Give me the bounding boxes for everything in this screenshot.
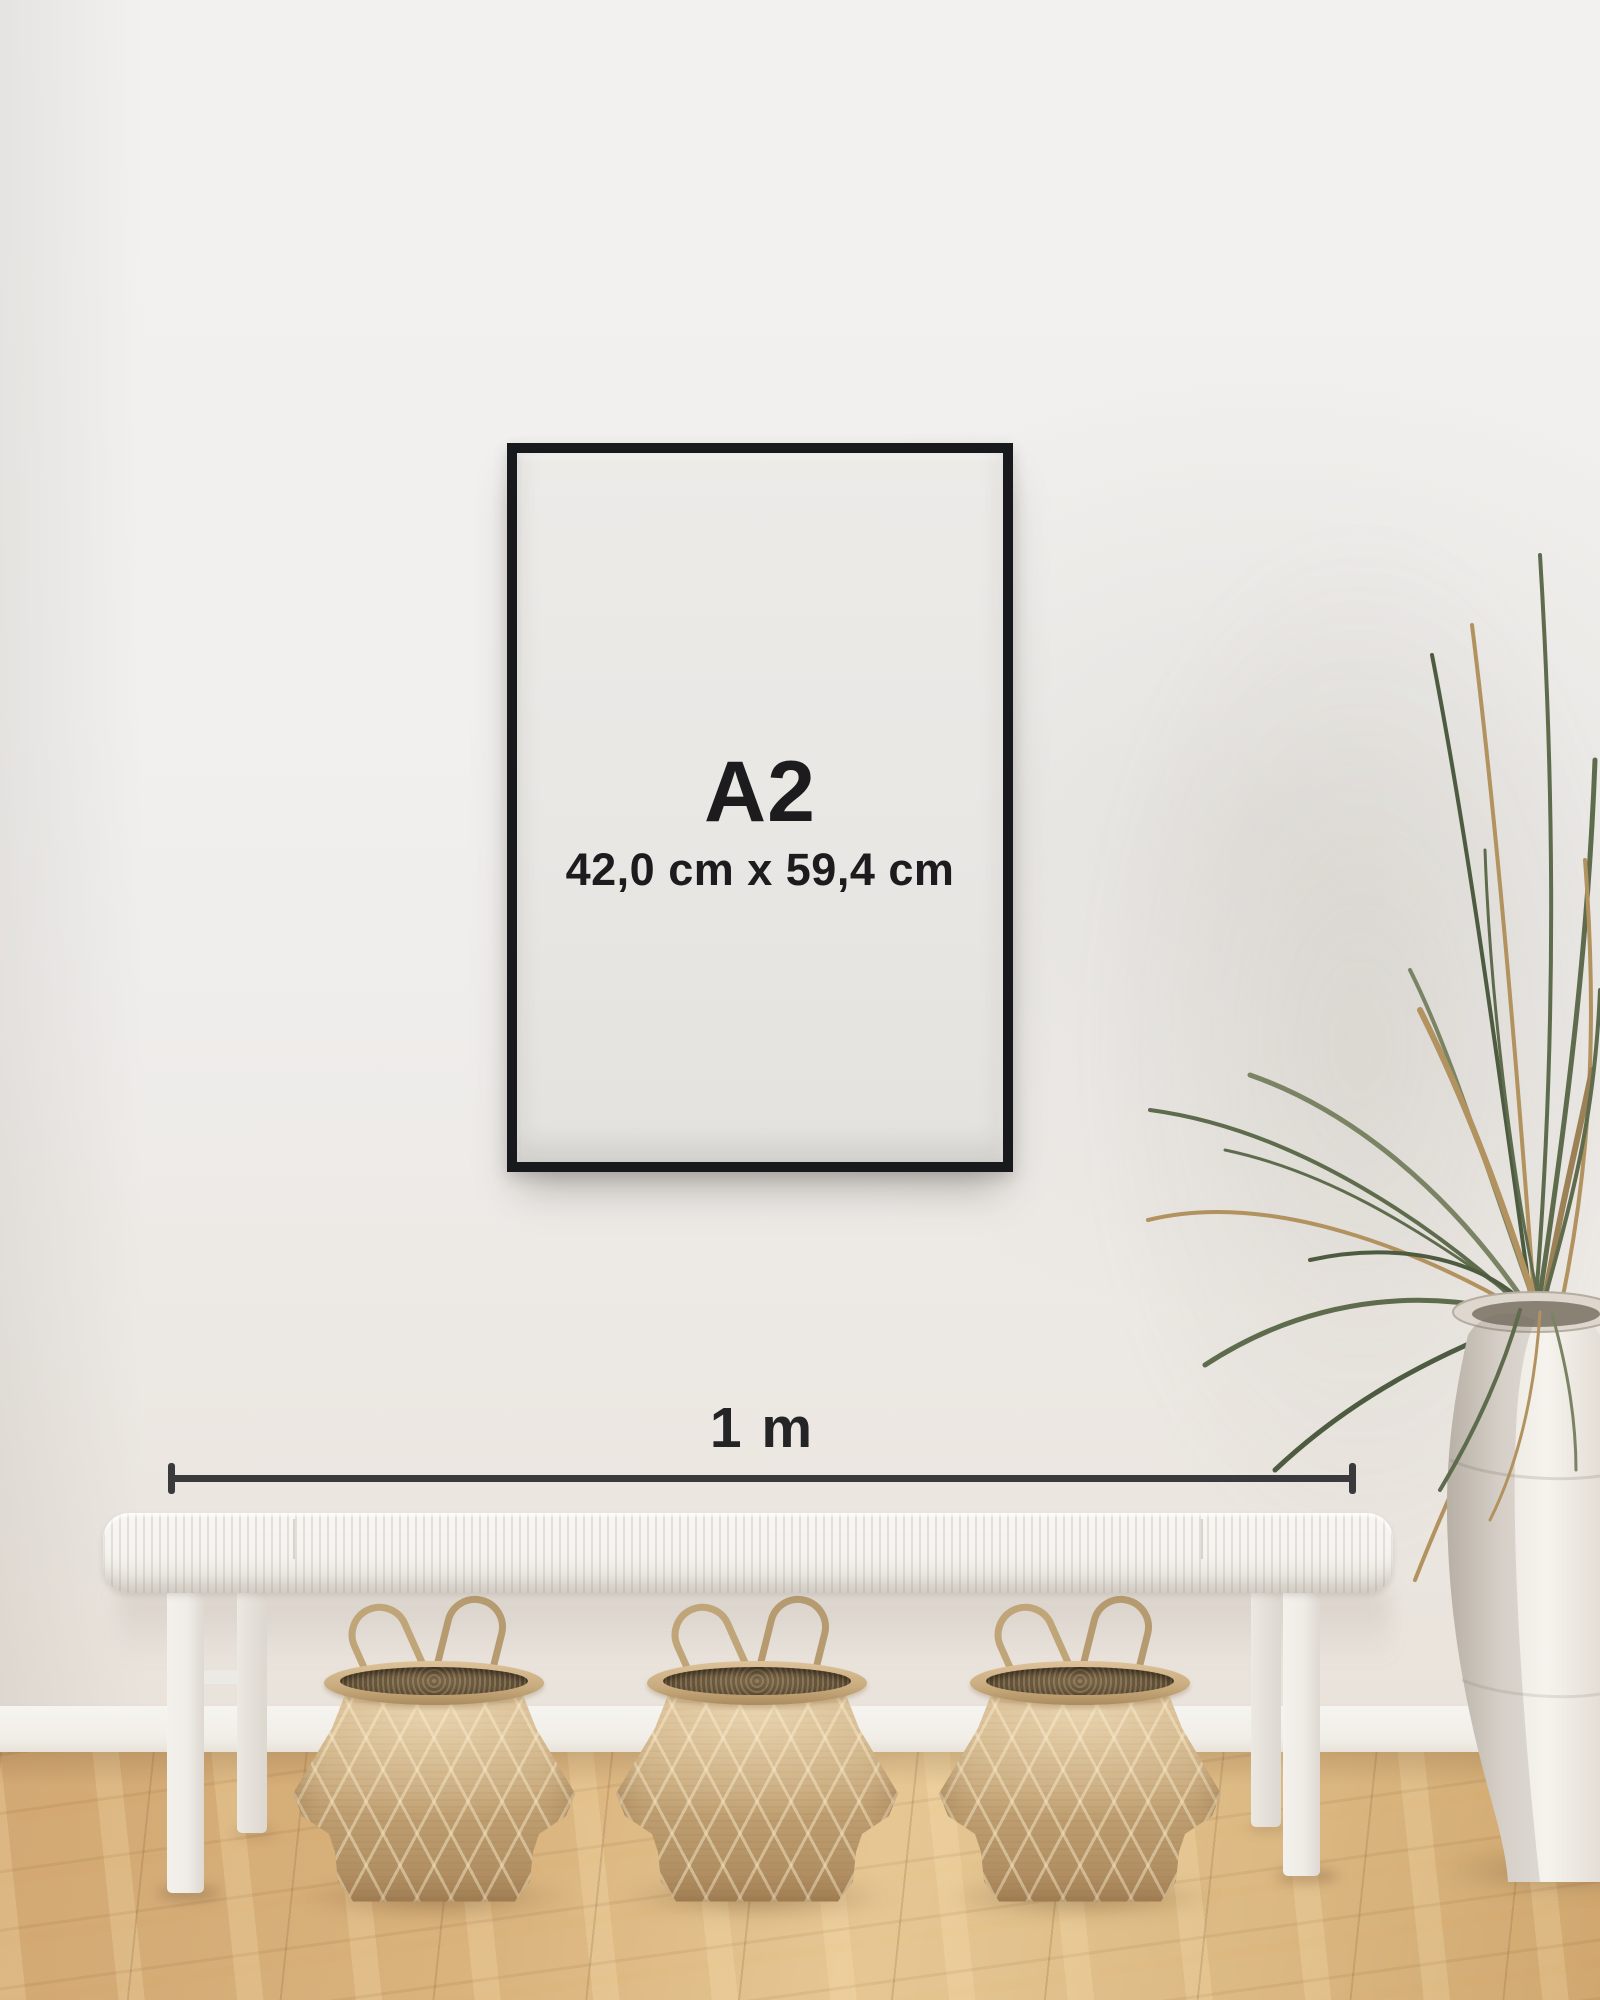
- basket-body: [284, 1681, 584, 1906]
- poster-size-label: A2: [517, 749, 1003, 835]
- poster-frame: A2 42,0 cm x 59,4 cm: [507, 443, 1013, 1172]
- basket-opening: [340, 1667, 528, 1695]
- bench-leg-front-left: [167, 1590, 204, 1893]
- basket-body: [607, 1681, 907, 1906]
- ceramic-vase: [1447, 1292, 1600, 1882]
- palm-plant: [1020, 430, 1600, 1890]
- bench-stretcher: [204, 1670, 238, 1684]
- poster-dimensions: 42,0 cm x 59,4 cm: [517, 847, 1003, 892]
- room-scene: A2 42,0 cm x 59,4 cm 1 m: [0, 0, 1600, 2000]
- poster-paper: A2 42,0 cm x 59,4 cm: [517, 453, 1003, 1162]
- basket-opening: [663, 1667, 851, 1695]
- scale-label: 1 m: [710, 1400, 814, 1457]
- bench-leg-back-left: [237, 1586, 267, 1833]
- scale-cap-left: [168, 1463, 175, 1494]
- seagrass-basket: [607, 1603, 907, 1908]
- seagrass-basket: [284, 1603, 584, 1908]
